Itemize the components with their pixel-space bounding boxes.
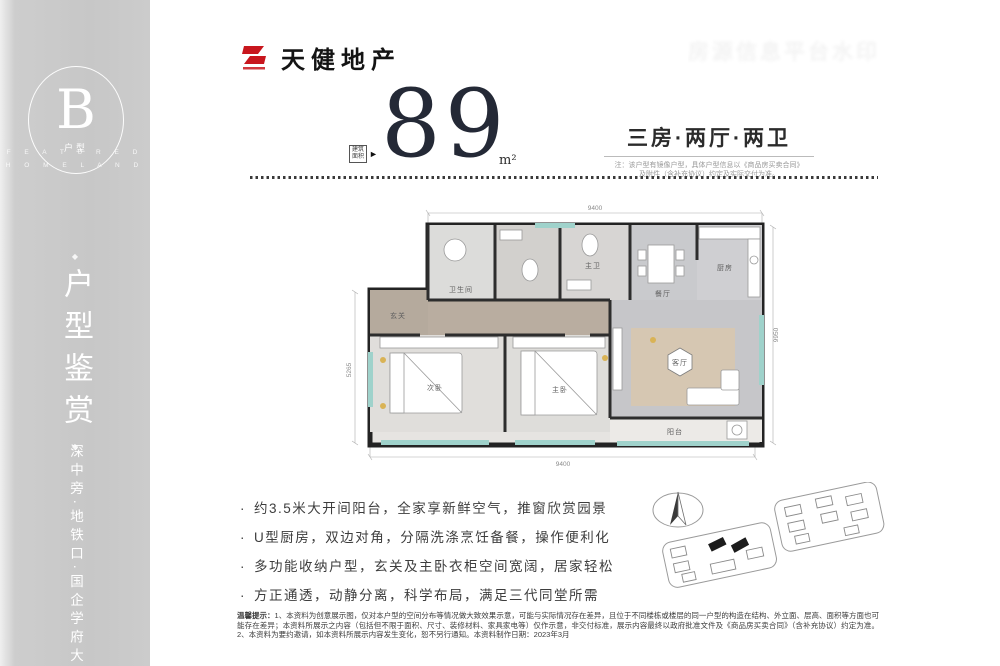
arrow-right-icon: ► (369, 150, 378, 159)
watermark: 房源信息平台水印 (688, 36, 878, 68)
keyplan-a (661, 521, 778, 589)
room-label-bedroom2: 次卧 (427, 383, 443, 392)
keyplan-drawing (645, 482, 885, 594)
room-label-living: 客厅 (672, 358, 688, 367)
caption-line-2: H O M E L A N D (0, 159, 150, 172)
dim-top: 9400 (588, 205, 603, 212)
layout-title: 三房·两厅·两卫 (604, 122, 814, 157)
brand-logo-icon (237, 41, 271, 75)
vertical-slogan: 深中旁·地铁口·国企学府大城 (65, 444, 85, 666)
keyplan-b (773, 482, 885, 553)
bullet-icon: · (240, 581, 254, 610)
dotted-divider (250, 176, 878, 179)
area-value: 89 (381, 77, 509, 173)
bullet-icon: · (240, 523, 254, 552)
keyplan-block (645, 482, 885, 594)
diamond-ornament-icon: ◆ (72, 252, 78, 262)
bullet-icon: · (240, 552, 254, 581)
caption-line-1: F E A T U R E D (0, 146, 150, 159)
compass-icon (653, 492, 703, 527)
area-tag: 建筑 面积 ► (349, 145, 378, 163)
room-label-master-bath: 主卫 (585, 261, 601, 270)
disclaimer: 温馨提示：1、本资料为创意展示图，仅对本户型的空间分布等情况做大致效果示意，可能… (237, 611, 879, 640)
disclaimer-lead: 温馨提示： (237, 611, 275, 620)
badge-letter: B (29, 81, 123, 139)
hallway-area (428, 300, 610, 335)
layout-summary: 三房·两厅·两卫 注：该户型有镜像户型，具体户型信息以《商品房买卖合同》 及附件… (604, 122, 814, 179)
area-unit: m² (499, 153, 517, 168)
vertical-title-block: ◆ 户型鉴赏 ◆ (0, 252, 150, 452)
bullet-icon: · (240, 494, 254, 523)
room-label-entry: 玄关 (390, 311, 406, 320)
room-label-dining: 餐厅 (655, 289, 671, 298)
dim-left: 5265 (346, 362, 353, 377)
feature-item: ·方正通透，动静分离，科学布局，满足三代同堂所需 (240, 581, 614, 610)
room-label-master: 主卧 (552, 385, 568, 394)
feature-item: ·约3.5米大开间阳台，全家享新鲜空气，推窗欣赏园景 (240, 494, 614, 523)
floorplan-drawing: 9400 9400 5265 9950 (335, 200, 785, 475)
room-label-balcony: 阳台 (667, 427, 683, 436)
disclaimer-body: 1、本资料为创意展示图，仅对本户型的空间分布等情况做大致效果示意，可能与实际情况… (237, 611, 879, 639)
feature-list: ·约3.5米大开间阳台，全家享新鲜空气，推窗欣赏园景 ·U型厨房，双边对角，分隔… (240, 494, 614, 610)
feature-item: ·U型厨房，双边对角，分隔洗涤烹饪备餐，操作便利化 (240, 523, 614, 552)
badge-caption: F E A T U R E D H O M E L A N D (0, 146, 150, 172)
area-tag-box: 建筑 面积 (349, 145, 367, 163)
vertical-title: 户型鉴赏 (53, 268, 97, 436)
feature-item: ·多功能收纳户型，玄关及主卧衣柜空间宽阔，居家轻松 (240, 552, 614, 581)
room-label-bath: 卫生间 (449, 285, 473, 294)
floorplan: 9400 9400 5265 9950 (335, 200, 785, 475)
brand-header: 天健地产 (237, 40, 401, 75)
room-label-kitchen: 厨房 (717, 263, 733, 272)
page: B 户型 F E A T U R E D H O M E L A N D ◆ 户… (0, 0, 1000, 666)
dim-bottom: 9400 (556, 461, 571, 468)
vertical-slogan-wrap: 深中旁·地铁口·国企学府大城 (0, 444, 150, 666)
sidebar: B 户型 F E A T U R E D H O M E L A N D ◆ 户… (0, 0, 150, 666)
dim-right: 9950 (773, 327, 780, 342)
